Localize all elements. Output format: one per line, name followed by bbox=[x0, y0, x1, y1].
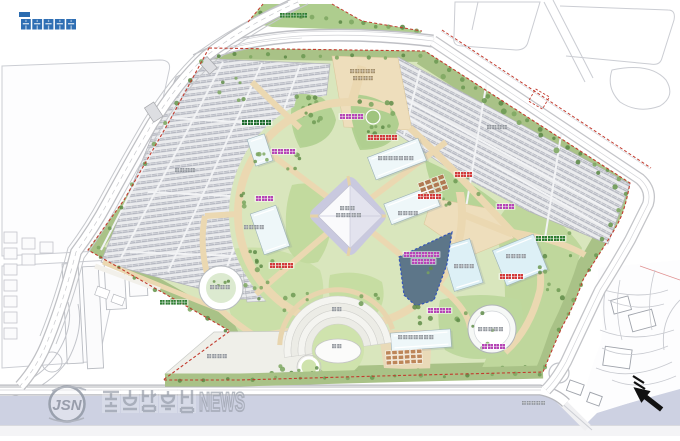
svg-text:NEWS: NEWS bbox=[199, 387, 245, 417]
svg-text:JSN: JSN bbox=[52, 397, 82, 414]
